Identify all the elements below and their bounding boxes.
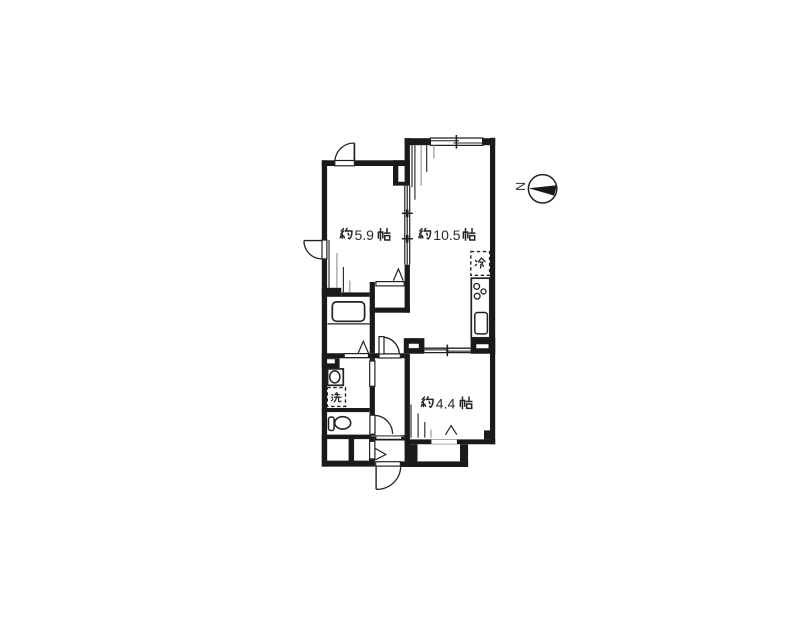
svg-text:10.5: 10.5 — [433, 227, 460, 243]
svg-text:4.4: 4.4 — [436, 395, 456, 411]
svg-text:N: N — [514, 182, 528, 191]
svg-text:5.9: 5.9 — [355, 227, 375, 243]
